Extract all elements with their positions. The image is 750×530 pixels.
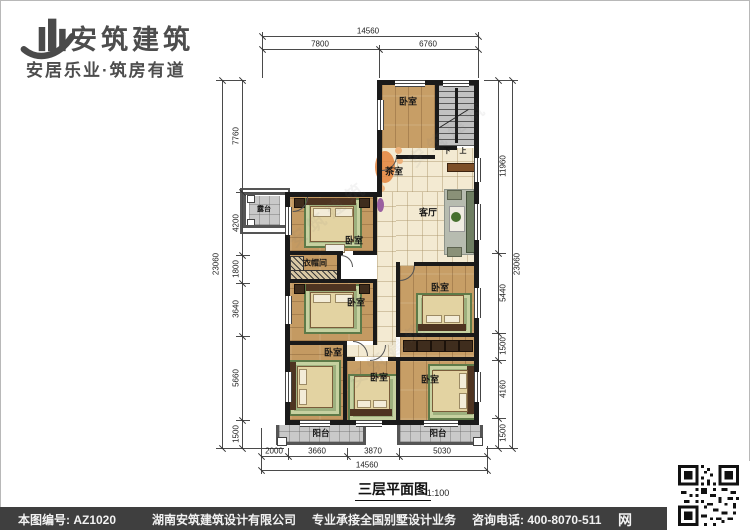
wall-segment (353, 251, 377, 255)
bed-pillow (459, 373, 467, 389)
window (377, 100, 384, 130)
bed-headboard (418, 324, 466, 331)
room-label-balcony-left: 阳台 (312, 427, 329, 439)
floor-plan-page: 安筑建筑 安居乐业·筑房有道 安筑建筑 安筑建筑 安筑建筑 (0, 0, 750, 530)
door-arc (370, 345, 386, 361)
dim-value: 23060 (513, 253, 522, 275)
dim-line (242, 80, 243, 448)
dim-value: 1500 (499, 424, 508, 442)
closet-unit (445, 340, 459, 352)
dim-line (261, 456, 487, 457)
dim-value: 3870 (364, 447, 382, 456)
dim-value: 5030 (433, 447, 451, 456)
plant (451, 212, 461, 222)
dim-line (261, 470, 487, 471)
dim-value: 2000 (265, 447, 283, 456)
wall-segment (435, 84, 439, 150)
footer-drawing-number: 本图编号: AZ1020 (18, 511, 116, 528)
room-label-bedroom-mid-left: 卧室 (345, 234, 363, 247)
dim-value: 23060 (212, 253, 221, 275)
floor-hallway (377, 196, 396, 357)
dim-value: 4200 (232, 214, 241, 232)
closet-unit (431, 340, 445, 352)
wall-segment (373, 279, 377, 345)
dim-line (262, 36, 478, 37)
bed-pillow (299, 389, 307, 405)
bed-pillow (335, 208, 353, 217)
window (474, 288, 481, 318)
stair-down-label: 下 (444, 146, 451, 156)
wall-segment (396, 357, 478, 361)
dim-value: 3640 (232, 300, 241, 318)
wall-segment (377, 80, 382, 197)
qr-code-pattern (678, 465, 739, 526)
dim-extension (478, 32, 479, 78)
bed-headboard (350, 409, 392, 416)
room-label-living-room: 客厅 (419, 206, 437, 219)
footer-web-badge: 网 (618, 510, 632, 530)
room-label-cloakroom: 衣帽间 (303, 258, 327, 269)
room-label-terrace: 露台 (257, 204, 271, 214)
wall-segment (396, 333, 478, 337)
room-label-bedroom-left-lower: 卧室 (347, 296, 365, 309)
bed-pillow (313, 208, 331, 217)
closet-unit (459, 340, 473, 352)
dim-value: 5440 (499, 284, 508, 302)
window (285, 372, 292, 402)
dim-value: 1500 (232, 425, 241, 443)
dim-value: 4160 (499, 380, 508, 398)
sideboard (447, 163, 477, 172)
dim-value: 11960 (499, 155, 508, 177)
stair-up-label: 上 (460, 146, 467, 156)
dim-value: 5660 (232, 369, 241, 387)
brand-name: 安筑建筑 (70, 18, 194, 57)
room-label-bedroom-bottom-left: 卧室 (324, 346, 342, 359)
bed-pillow (426, 315, 442, 323)
closet-unit (417, 340, 431, 352)
window (443, 80, 469, 87)
dim-value: 14560 (356, 461, 378, 470)
bed-pillow (357, 400, 371, 408)
terrace-wall (245, 192, 285, 195)
bed-pillow (299, 369, 307, 385)
wall-segment (414, 262, 478, 266)
terrace-wall (243, 192, 246, 228)
balcony-rail (363, 425, 366, 445)
window (356, 420, 382, 427)
balcony-post (277, 437, 287, 446)
window (300, 420, 330, 427)
room-label-tea-room: 茶室 (385, 165, 403, 178)
terrace-wall (245, 225, 287, 228)
room-label-balcony-right: 阳台 (429, 427, 446, 439)
wall-segment (396, 357, 400, 420)
nightstand (294, 284, 305, 294)
dim-value: 1800 (232, 260, 241, 278)
dim-value: 7800 (311, 40, 329, 49)
qr-code (667, 461, 750, 530)
window (285, 296, 292, 324)
armchair (447, 247, 462, 257)
balcony-rail (397, 442, 483, 445)
wall-segment (285, 279, 373, 283)
room-label-bedroom-bottom-right: 卧室 (421, 373, 439, 386)
footer-phone: 咨询电话: 400-8070-511 (472, 511, 601, 528)
tea-stool (395, 147, 402, 154)
door-arc (353, 341, 368, 356)
wall-segment (343, 357, 355, 361)
door-arc (341, 255, 353, 267)
dim-value: 7760 (232, 127, 241, 145)
room-label-bedroom-bottom-middle: 卧室 (370, 371, 388, 384)
room-label-bedroom-mid-right: 卧室 (431, 281, 449, 294)
dim-extension (262, 32, 263, 78)
plan-scale: 1:100 (427, 488, 450, 498)
window (395, 80, 425, 87)
armchair (447, 190, 462, 200)
closet-unit (403, 340, 417, 352)
window (474, 158, 481, 182)
window (474, 372, 481, 402)
dim-extension (261, 428, 262, 474)
dim-line (262, 49, 478, 50)
dim-line (222, 80, 223, 448)
decor-vase (377, 198, 384, 212)
window (474, 204, 481, 240)
bed-headboard (306, 284, 356, 291)
dim-value: 14560 (357, 27, 379, 36)
nightstand (359, 284, 370, 294)
nightstand (359, 198, 370, 208)
wall-segment (396, 155, 435, 159)
balcony-rail (276, 442, 366, 445)
dim-value: 3660 (308, 447, 326, 456)
room-label-bedroom-top: 卧室 (399, 95, 417, 108)
brand-logo-icon (20, 14, 76, 66)
wall-segment (285, 341, 347, 345)
bed-pillow (313, 294, 331, 303)
bed-pillow (459, 393, 467, 409)
plan-title: 三层平面图 (355, 479, 431, 501)
window (424, 420, 458, 427)
wall-segment (373, 196, 377, 255)
footer-company-name: 湖南安筑建筑设计有限公司 (152, 511, 296, 528)
bed-headboard (306, 198, 356, 205)
dim-value: 1500 (499, 337, 508, 355)
bed-pillow (444, 315, 460, 323)
window (285, 207, 292, 235)
bed-headboard (467, 366, 474, 414)
balcony-post (473, 437, 483, 446)
dim-value: 6760 (419, 40, 437, 49)
footer-service-text: 专业承接全国别墅设计业务 (312, 511, 456, 528)
wall-segment (285, 251, 343, 255)
bed-pillow (373, 400, 387, 408)
